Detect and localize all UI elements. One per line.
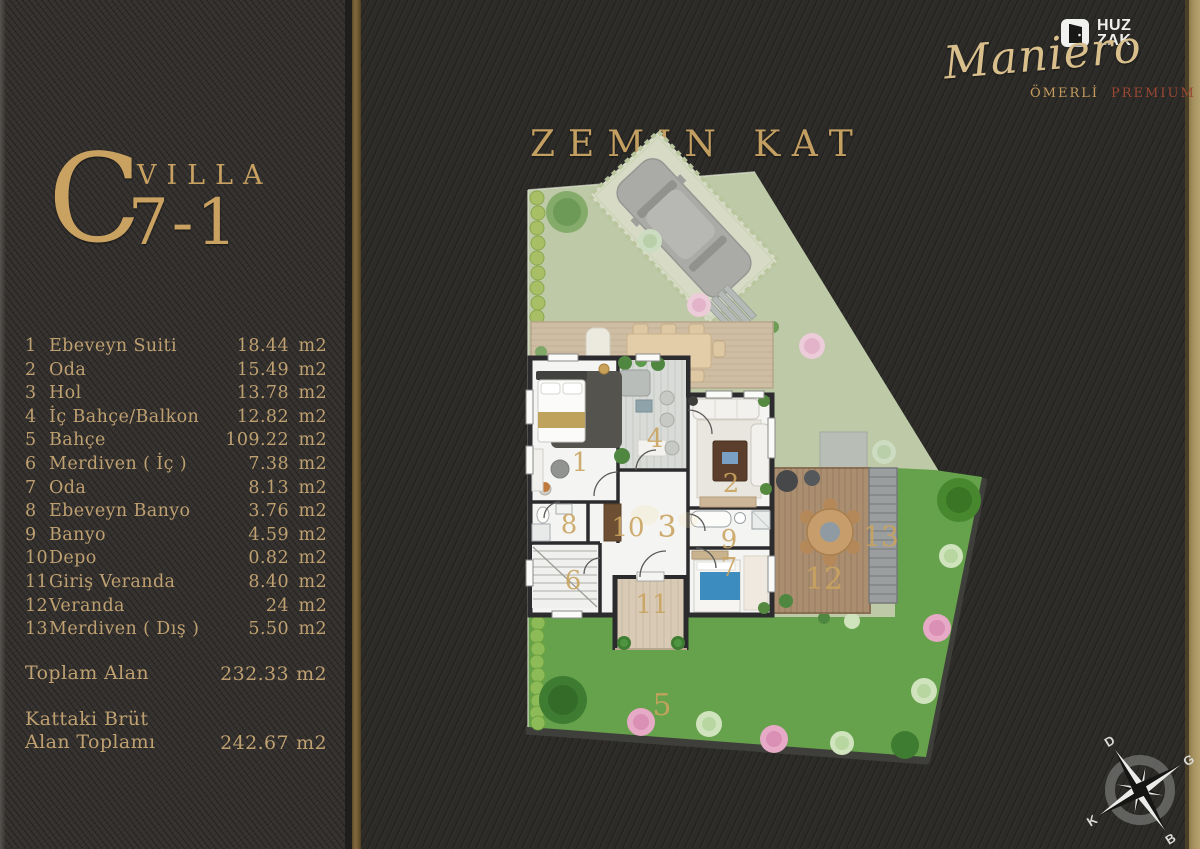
concrete-pad — [820, 432, 867, 468]
compass-letter-right: G — [1180, 751, 1197, 769]
compass-letter-top: D — [1102, 732, 1118, 750]
plan-room-label-10: 10 — [611, 513, 644, 543]
plan-room-label-9: 9 — [721, 525, 738, 555]
veranda-bistro-table — [804, 470, 820, 486]
compass-letter-left: K — [1084, 811, 1100, 829]
plan-room-label-13: 13 — [863, 520, 899, 553]
hedge-upper — [530, 191, 545, 324]
plan-room-label-4: 4 — [647, 424, 664, 454]
plan-room-label-8: 8 — [561, 510, 578, 540]
plan-room-label-7: 7 — [721, 553, 738, 583]
plan-room-label-5: 5 — [652, 688, 671, 723]
plan-room-label-1: 1 — [572, 448, 589, 478]
plan-room-label-6: 6 — [565, 566, 582, 596]
plan-room-label-11: 11 — [635, 590, 668, 620]
floor-plan: 1 2 3 4 5 6 7 8 9 10 11 12 13 — [0, 0, 1200, 849]
hedge-lower — [530, 616, 545, 730]
plan-room-label-2: 2 — [723, 469, 740, 499]
compass-letter-bottom: B — [1163, 830, 1179, 848]
plan-room-label-12: 12 — [805, 562, 843, 597]
compass-rose: D G B K — [1075, 725, 1200, 849]
veranda-plant — [779, 594, 793, 608]
plan-room-label-3: 3 — [657, 510, 676, 545]
brochure-page: C VILLA 7-1 1Ebeveyn Suiti18.44m2 2Oda15… — [0, 0, 1200, 849]
veranda-bistro-chair — [776, 470, 798, 492]
